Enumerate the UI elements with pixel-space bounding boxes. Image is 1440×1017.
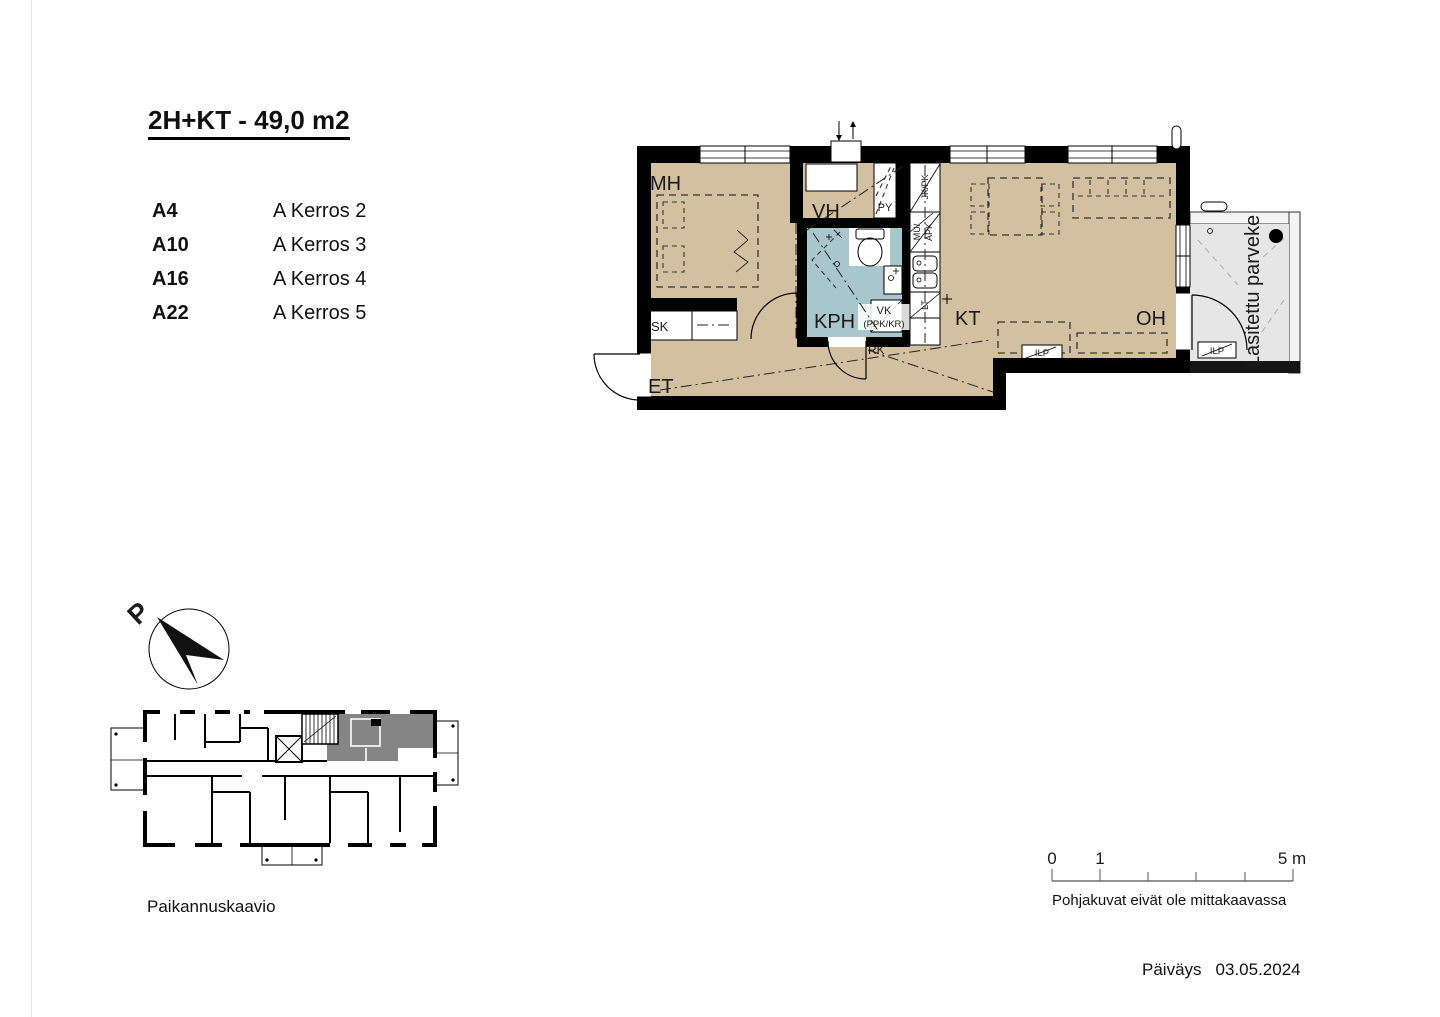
apartment-code: A4 xyxy=(152,200,273,223)
apartment-row: A10 A Kerros 3 xyxy=(152,228,366,262)
stairs-icon xyxy=(302,714,338,744)
jk-pk-label: JK/PK xyxy=(920,174,930,199)
room-label-et: ET xyxy=(648,376,674,398)
location-diagram-caption: Paikannuskaavio xyxy=(147,897,276,917)
balcony-window xyxy=(1176,225,1190,287)
balcony: ILP Lasitettu parveke xyxy=(1190,212,1300,373)
scale-tick-label-0: 0 xyxy=(1047,849,1056,868)
window xyxy=(1068,146,1157,163)
date-label: Päiväys xyxy=(1142,960,1202,979)
lt-label: LT xyxy=(920,300,930,310)
entry-door xyxy=(594,353,651,400)
balcony-column-icon xyxy=(1269,229,1283,243)
floorplan-page: 2H+KT - 49,0 m2 A4 A Kerros 2 A10 A Kerr… xyxy=(0,0,1440,1017)
apartment-row: A22 A Kerros 5 xyxy=(152,296,366,330)
vent-icon xyxy=(831,121,861,162)
page-title: 2H+KT - 49,0 m2 xyxy=(148,105,350,140)
apartment-floor: A Kerros 2 xyxy=(273,200,366,223)
vh-wardrobe xyxy=(806,164,857,191)
vk-label: VK xyxy=(877,305,892,317)
scale-note: Pohjakuvat eivät ole mittakaavassa xyxy=(1052,892,1286,909)
scale-tick-label-5: 5 m xyxy=(1278,849,1306,868)
compass-north-label: P xyxy=(122,596,156,630)
balcony-label: Lasitettu parveke xyxy=(1242,215,1264,367)
room-label-kph: KPH xyxy=(814,311,855,333)
ilp-island-label: ILP xyxy=(1035,348,1049,359)
apartment-floor: A Kerros 4 xyxy=(273,268,366,291)
apartment-row: A4 A Kerros 2 xyxy=(152,194,366,228)
room-label-mh: MH xyxy=(650,173,681,195)
location-diagram xyxy=(105,695,485,880)
apartment-list: A4 A Kerros 2 A10 A Kerros 3 A16 A Kerro… xyxy=(152,194,366,330)
room-label-py: PY xyxy=(878,202,893,214)
page-edge-line xyxy=(31,0,32,1017)
compass: P xyxy=(125,590,240,705)
room-label-kt: KT xyxy=(955,308,981,330)
elevator-icon xyxy=(276,736,302,762)
sink-icon xyxy=(884,266,902,294)
floor-plan: ILP Lasitettu parveke xyxy=(585,95,1315,425)
apartment-code: A10 xyxy=(152,234,273,257)
mu-label: MU/ xyxy=(912,223,922,240)
apartment-floor: A Kerros 3 xyxy=(273,234,366,257)
ppk-kr-label: (PPK/KR) xyxy=(863,319,904,330)
room-label-vh: VH xyxy=(812,201,840,223)
ilp-balcony-label: ILP xyxy=(1210,346,1224,357)
vk-reservation: VK (PPK/KR) xyxy=(858,300,910,332)
pipe-icon xyxy=(1172,126,1181,149)
north-arrow-icon xyxy=(157,617,224,685)
scale-tick-label-1: 1 xyxy=(1095,849,1104,868)
footer-date: Päiväys03.05.2024 xyxy=(1142,960,1315,980)
toilet-icon xyxy=(849,228,890,266)
apk-label: APK xyxy=(924,223,934,241)
apartment-code: A22 xyxy=(152,302,273,325)
scale-bar: 0 1 5 m xyxy=(1040,842,1320,887)
room-label-sk: SK xyxy=(651,319,669,334)
window xyxy=(950,146,1025,163)
window xyxy=(700,146,790,163)
mh-vh-wall xyxy=(790,163,803,223)
pipe-icon xyxy=(1201,202,1227,211)
rk-label: RK xyxy=(868,343,885,357)
apartment-row: A16 A Kerros 4 xyxy=(152,262,366,296)
room-label-oh: OH xyxy=(1136,308,1166,330)
apartment-code: A16 xyxy=(152,268,273,291)
apartment-floor: A Kerros 5 xyxy=(273,302,366,325)
date-value: 03.05.2024 xyxy=(1216,960,1301,979)
